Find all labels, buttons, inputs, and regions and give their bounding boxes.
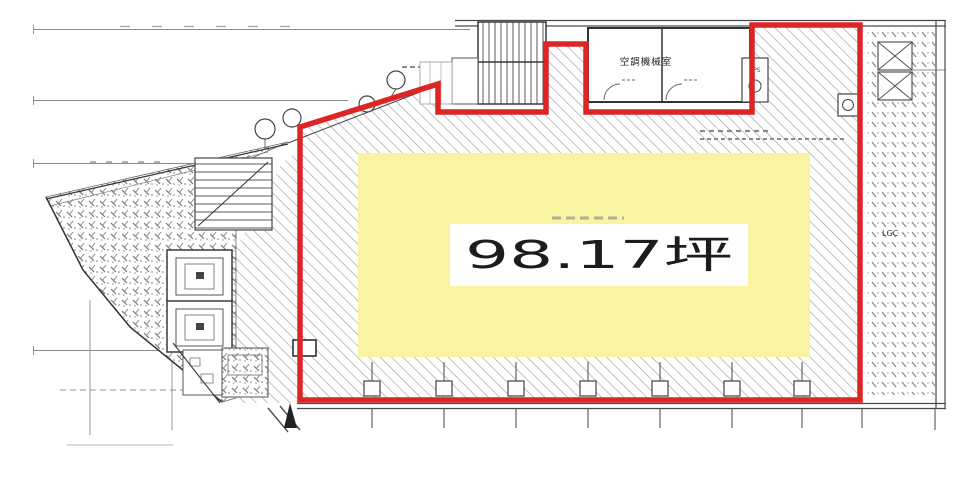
area-label: 98.17坪 bbox=[465, 233, 733, 277]
right-service-band: LGC bbox=[866, 27, 946, 395]
area-label-box: 98.17坪 bbox=[450, 224, 748, 286]
wedge-staircase bbox=[195, 158, 272, 230]
elevator-shafts bbox=[167, 250, 232, 352]
lgc-label: LGC bbox=[882, 229, 899, 238]
service-box bbox=[838, 94, 858, 116]
floor-plan-document: 空調機械室 SPS LGC bbox=[0, 0, 980, 483]
restroom-block bbox=[173, 343, 268, 403]
machine-room: 空調機械室 SPS bbox=[588, 28, 768, 102]
floor-plan-svg: 空調機械室 SPS LGC bbox=[0, 0, 980, 483]
boundary-box bbox=[293, 340, 316, 356]
machine-room-label: 空調機械室 bbox=[620, 56, 673, 68]
